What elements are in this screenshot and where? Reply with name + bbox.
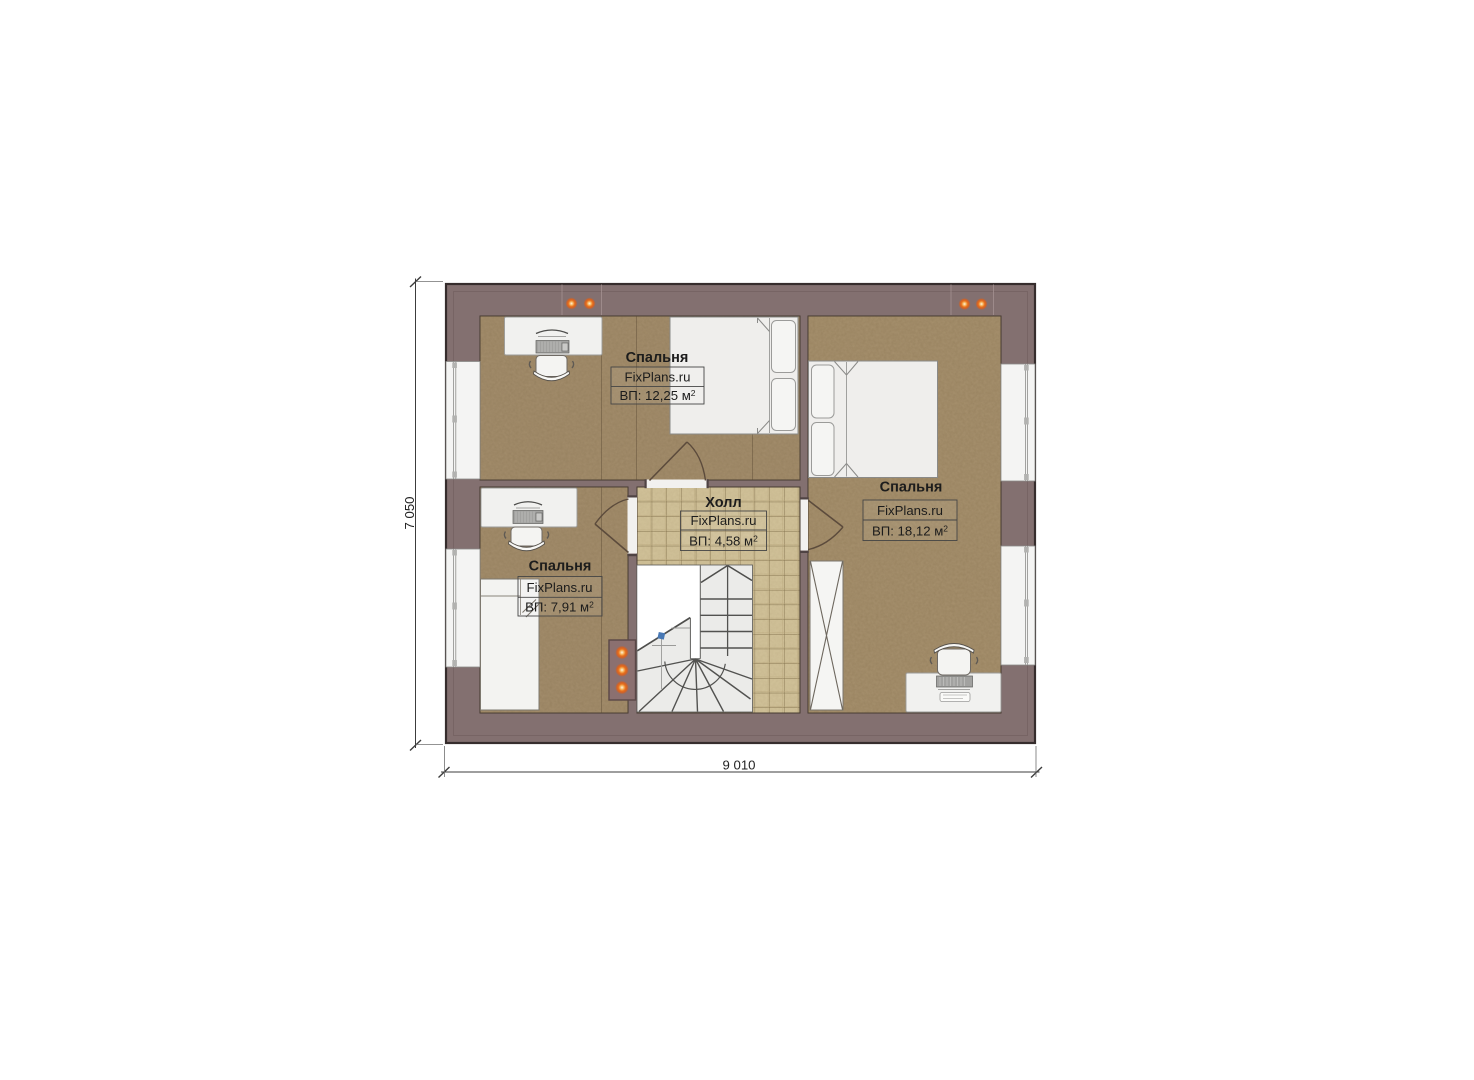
svg-text:Спальня: Спальня xyxy=(880,480,943,496)
svg-text:FixPlans.ru: FixPlans.ru xyxy=(691,513,757,528)
svg-text:7 050: 7 050 xyxy=(402,496,417,529)
svg-text:ВП: 18,12 м2: ВП: 18,12 м2 xyxy=(872,524,948,539)
svg-text:ВП: 7,91 м2: ВП: 7,91 м2 xyxy=(525,599,594,614)
svg-text:Спальня: Спальня xyxy=(626,350,689,366)
svg-text:9 010: 9 010 xyxy=(722,758,755,773)
svg-text:ВП: 12,25 м2: ВП: 12,25 м2 xyxy=(619,388,695,403)
svg-text:FixPlans.ru: FixPlans.ru xyxy=(527,580,593,595)
svg-text:FixPlans.ru: FixPlans.ru xyxy=(877,503,943,518)
svg-text:Холл: Холл xyxy=(705,495,741,511)
svg-text:Спальня: Спальня xyxy=(529,559,592,575)
svg-text:ВП: 4,58 м2: ВП: 4,58 м2 xyxy=(689,534,758,549)
svg-text:FixPlans.ru: FixPlans.ru xyxy=(625,370,691,385)
